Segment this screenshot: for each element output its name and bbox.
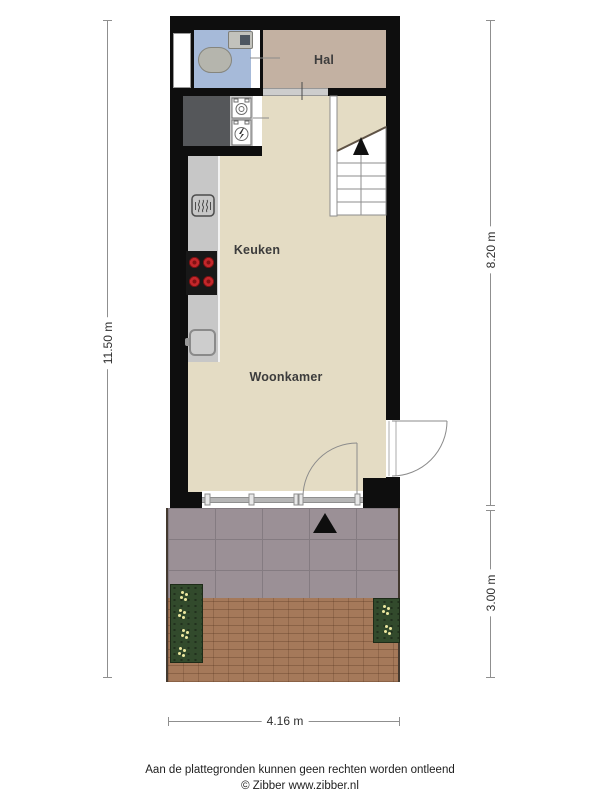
dimension-label-right-lower: 3.00 m — [483, 570, 499, 617]
wall-corner — [363, 478, 400, 508]
garden — [166, 508, 400, 682]
storage-closet — [183, 96, 230, 146]
bathroom-window — [173, 33, 191, 88]
washbasin-icon — [228, 31, 253, 49]
planter-right — [373, 598, 400, 643]
living-room-window — [202, 491, 363, 508]
footer: Aan de plattegronden kunnen geen rechten… — [0, 762, 600, 794]
planter-left — [170, 584, 203, 663]
cooktop-4-burners-icon — [186, 251, 217, 295]
flower-icon — [179, 647, 182, 650]
dimension-label-bottom: 4.16 m — [262, 713, 309, 729]
toilet-icon — [198, 47, 232, 73]
room-label-woonkamer: Woonkamer — [249, 370, 322, 384]
burner-icon — [203, 276, 214, 287]
window-glass — [202, 497, 363, 503]
hal-door-opening — [263, 88, 328, 96]
side-door-opening — [386, 420, 400, 477]
room-label-keuken: Keuken — [234, 243, 280, 257]
burner-icon — [203, 257, 214, 268]
flower-icon — [383, 605, 386, 608]
dimension-label-left: 11.50 m — [100, 317, 116, 369]
flower-icon — [181, 591, 184, 594]
flower-icon — [385, 625, 388, 628]
footer-disclaimer: Aan de plattegronden kunnen geen rechten… — [0, 762, 600, 778]
room-label-hal: Hal — [314, 53, 334, 67]
interior-wall — [183, 146, 262, 156]
floorplan-canvas: Hal Keuken Woonkamer 11.50 m 8.20 m 3.00… — [0, 0, 600, 800]
sink-icon — [189, 329, 216, 356]
burner-icon — [189, 276, 200, 287]
appliance-bay-door-opening — [253, 96, 262, 146]
flower-icon — [179, 609, 182, 612]
burner-icon — [189, 257, 200, 268]
footer-credit: © Zibber www.zibber.nl — [0, 778, 600, 794]
washbasin-bowl — [240, 35, 250, 45]
appliance-bay — [230, 96, 253, 146]
flower-icon — [182, 629, 185, 632]
dimension-label-right-upper: 8.20 m — [483, 227, 499, 274]
entrance-arrow-icon — [313, 513, 337, 533]
